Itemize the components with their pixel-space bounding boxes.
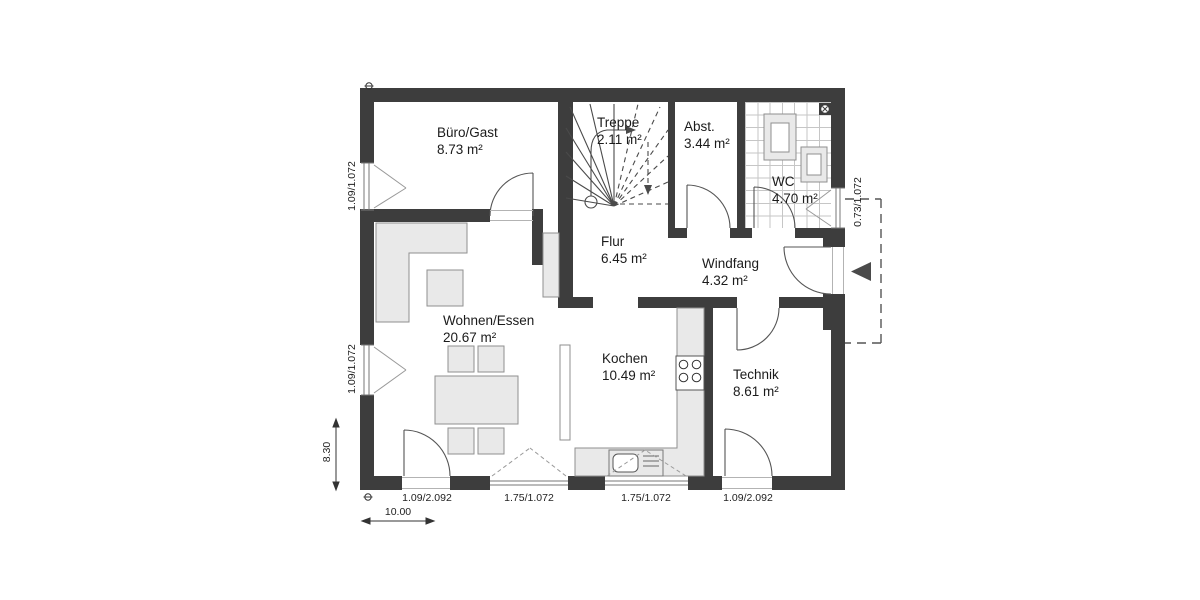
- wall-segment: [831, 330, 845, 476]
- wall-segment: [668, 228, 687, 238]
- room-label-wc: WC 4.70 m²: [772, 173, 818, 207]
- sink-drainer: [643, 456, 659, 466]
- wall-segment: [360, 395, 374, 476]
- wall-segment: [831, 102, 845, 188]
- entrance-arrow-icon: [851, 262, 871, 281]
- room-label-kochen: Kochen 10.49 m²: [602, 350, 655, 384]
- armchair: [427, 270, 463, 306]
- dim-label-window-right-wc: 0.73/1.072: [852, 177, 864, 227]
- wall-segment: [737, 102, 745, 228]
- sink-unit: [609, 450, 663, 476]
- wall-segment: [795, 228, 831, 238]
- wall-segment: [450, 476, 490, 490]
- room-label-buero-gast: Büro/Gast 8.73 m²: [437, 124, 498, 158]
- room-label-abst: Abst. 3.44 m²: [684, 118, 730, 152]
- dim-label-window-bottom-left: 1.75/1.072: [504, 492, 554, 504]
- wc-tile-floor: [745, 102, 831, 228]
- dim-label-window-left-upper: 1.09/1.072: [346, 161, 358, 211]
- wall-segment: [360, 476, 402, 490]
- wall-segment: [704, 308, 713, 476]
- room-area: 2.11 m²: [597, 131, 642, 148]
- wall-segment: [730, 228, 752, 238]
- wall-segment: [558, 102, 573, 307]
- dining-chair: [478, 428, 504, 454]
- door-swing-abst: [687, 185, 730, 228]
- room-area: 10.49 m²: [602, 367, 655, 384]
- room-area: 8.73 m²: [437, 141, 498, 158]
- room-label-technik: Technik 8.61 m²: [733, 366, 779, 400]
- dim-label-door-bottom-left: 1.09/2.092: [402, 492, 452, 504]
- room-label-treppe: Treppe 2.11 m²: [597, 114, 642, 148]
- wall-segment: [360, 88, 845, 102]
- door-swing-technik-bottom: [725, 429, 772, 476]
- dining-chair: [478, 346, 504, 372]
- sideboard: [543, 233, 559, 297]
- room-area: 3.44 m²: [684, 135, 730, 152]
- stair-arrow-down: [644, 185, 652, 195]
- room-name: Büro/Gast: [437, 124, 498, 141]
- dim-label-overall-width: 10.00: [385, 506, 411, 518]
- door-swing-technik-top: [737, 308, 779, 350]
- room-name: Wohnen/Essen: [443, 312, 534, 329]
- wall-segment: [558, 297, 593, 308]
- dim-label-door-bottom-right: 1.09/2.092: [723, 492, 773, 504]
- wall-segment: [688, 476, 722, 490]
- wall-segment: [532, 209, 543, 265]
- wall-segment: [772, 476, 845, 490]
- room-name: Flur: [601, 233, 647, 250]
- sofa-l-shape: [376, 223, 467, 322]
- room-name: Treppe: [597, 114, 642, 131]
- room-area: 8.61 m²: [733, 383, 779, 400]
- window-right-wc: [831, 188, 845, 228]
- floor-plan: Büro/Gast 8.73 m² Treppe 2.11 m² Abst. 3…: [0, 0, 1200, 600]
- stair-start-circle: [585, 196, 597, 208]
- room-label-windfang: Windfang 4.32 m²: [702, 255, 759, 289]
- cooktop: [676, 356, 704, 390]
- sink-bowl: [613, 454, 638, 472]
- dim-label-overall-depth: 8.30: [321, 442, 333, 462]
- cooktop-burners: [679, 360, 701, 382]
- room-label-flur: Flur 6.45 m²: [601, 233, 647, 267]
- room-name: Windfang: [702, 255, 759, 272]
- room-area: 20.67 m²: [443, 329, 534, 346]
- wall-segment: [360, 210, 374, 345]
- room-area: 4.70 m²: [772, 190, 818, 207]
- dimension-lines: [333, 419, 434, 524]
- room-label-wohnen-essen: Wohnen/Essen 20.67 m²: [443, 312, 534, 346]
- radiator: [560, 345, 570, 440]
- room-name: Kochen: [602, 350, 655, 367]
- door-swing-buero: [490, 173, 533, 216]
- window-left-upper: [361, 163, 374, 210]
- wall-segment: [638, 297, 737, 308]
- dim-label-window-left-lower: 1.09/1.072: [346, 344, 358, 394]
- dining-chair: [448, 428, 474, 454]
- window-left-lower: [361, 345, 374, 395]
- room-area: 4.32 m²: [702, 272, 759, 289]
- wall-segment: [360, 102, 374, 163]
- room-name: Abst.: [684, 118, 730, 135]
- window-bottom-left: [490, 481, 568, 485]
- door-swing-entrance: [784, 247, 831, 294]
- wall-segment: [568, 476, 605, 490]
- room-name: WC: [772, 173, 818, 190]
- wall-segment: [779, 297, 845, 308]
- dim-label-window-bottom-right: 1.75/1.072: [621, 492, 671, 504]
- window-bottom-right: [605, 481, 688, 485]
- dining-chair: [448, 346, 474, 372]
- wall-segment: [668, 102, 675, 238]
- kitchen-counter: [575, 308, 704, 476]
- room-area: 6.45 m²: [601, 250, 647, 267]
- dining-table: [435, 376, 518, 424]
- wall-segment: [360, 209, 490, 222]
- room-name: Technik: [733, 366, 779, 383]
- door-swing-wohnen: [404, 430, 450, 476]
